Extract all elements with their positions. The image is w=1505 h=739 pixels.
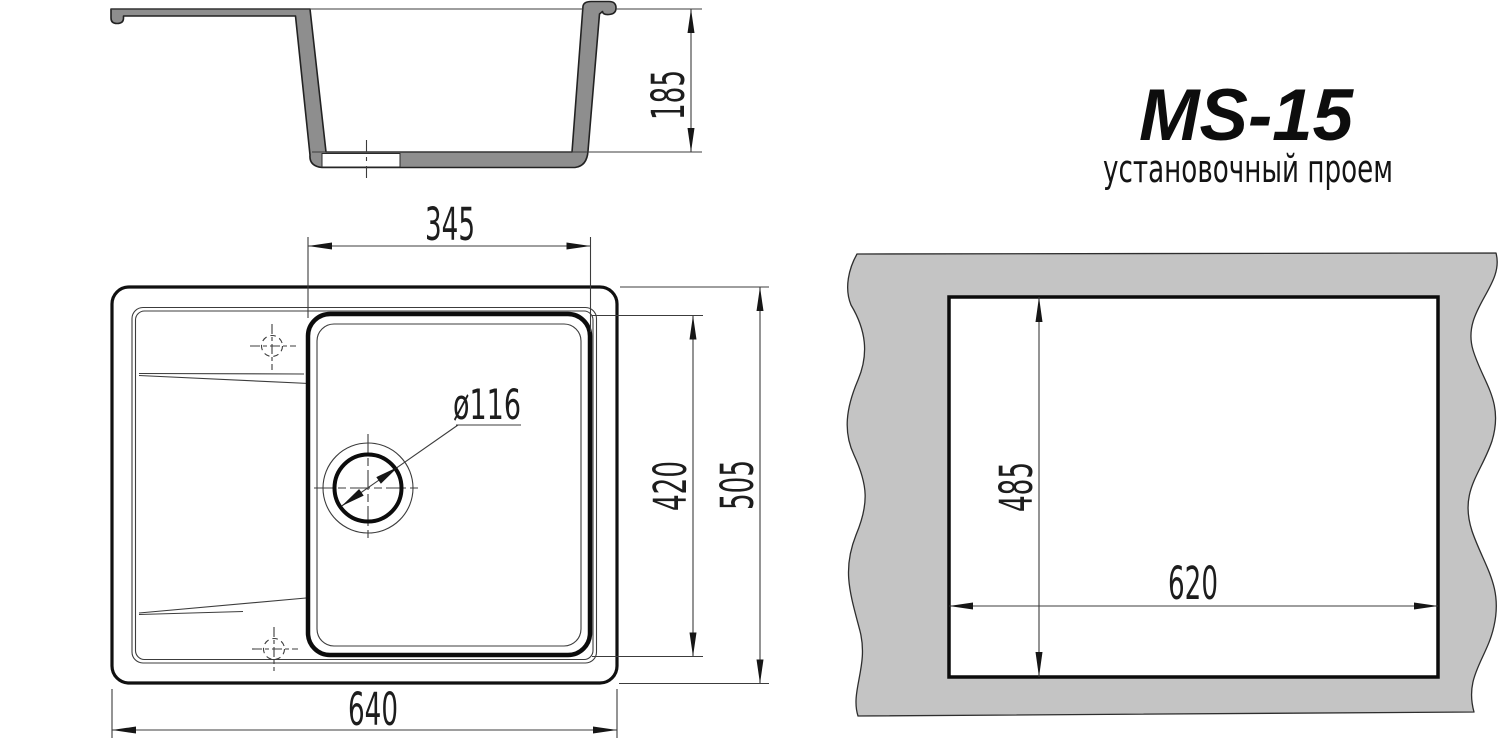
plan-view: ø116 345 420 505 — [112, 198, 769, 738]
dim-420: 420 — [592, 316, 703, 657]
faucet-hole-mark-bottom — [252, 627, 298, 671]
plan-outer-edge — [112, 287, 617, 683]
model-title: MS-15 — [1139, 75, 1354, 156]
dim-185-arrow-up — [688, 9, 695, 33]
section-view: 185 — [111, 2, 702, 180]
drain-diameter-arrow-2 — [376, 467, 398, 484]
dim-485-label: 485 — [990, 462, 1043, 512]
drainboard-groove-top-1 — [139, 374, 304, 375]
dim-505-label: 505 — [711, 460, 764, 510]
cutout-view: 485 620 — [847, 253, 1497, 716]
dim-345-label: 345 — [425, 198, 475, 251]
drain-diameter-arrow-1 — [342, 489, 364, 506]
model-subtitle: установочный проем — [1103, 147, 1393, 191]
bowl-outline — [308, 314, 590, 655]
dim-640: 640 — [112, 683, 617, 738]
drain-diameter-label: ø116 — [453, 380, 521, 429]
dim-620-label: 620 — [1168, 557, 1218, 610]
plan-rim-line-outer — [132, 308, 597, 664]
title-block: MS-15 установочный проем — [1103, 75, 1393, 191]
drain-gap — [322, 154, 400, 168]
dim-185-arrow-down — [688, 128, 695, 152]
bowl-inner-edge — [317, 324, 581, 646]
dim-185-label: 185 — [642, 70, 695, 120]
drain-hole: ø116 — [314, 380, 521, 542]
technical-drawing: 185 — [0, 0, 1505, 739]
section-profile — [111, 2, 616, 168]
drain-leader-line — [398, 425, 458, 467]
drainboard-groove-bottom-1 — [139, 598, 306, 613]
drainboard-groove-top-2 — [139, 376, 309, 384]
faucet-hole-mark-top — [250, 324, 296, 370]
dim-640-label: 640 — [348, 683, 398, 736]
dim-420-label: 420 — [644, 461, 697, 511]
